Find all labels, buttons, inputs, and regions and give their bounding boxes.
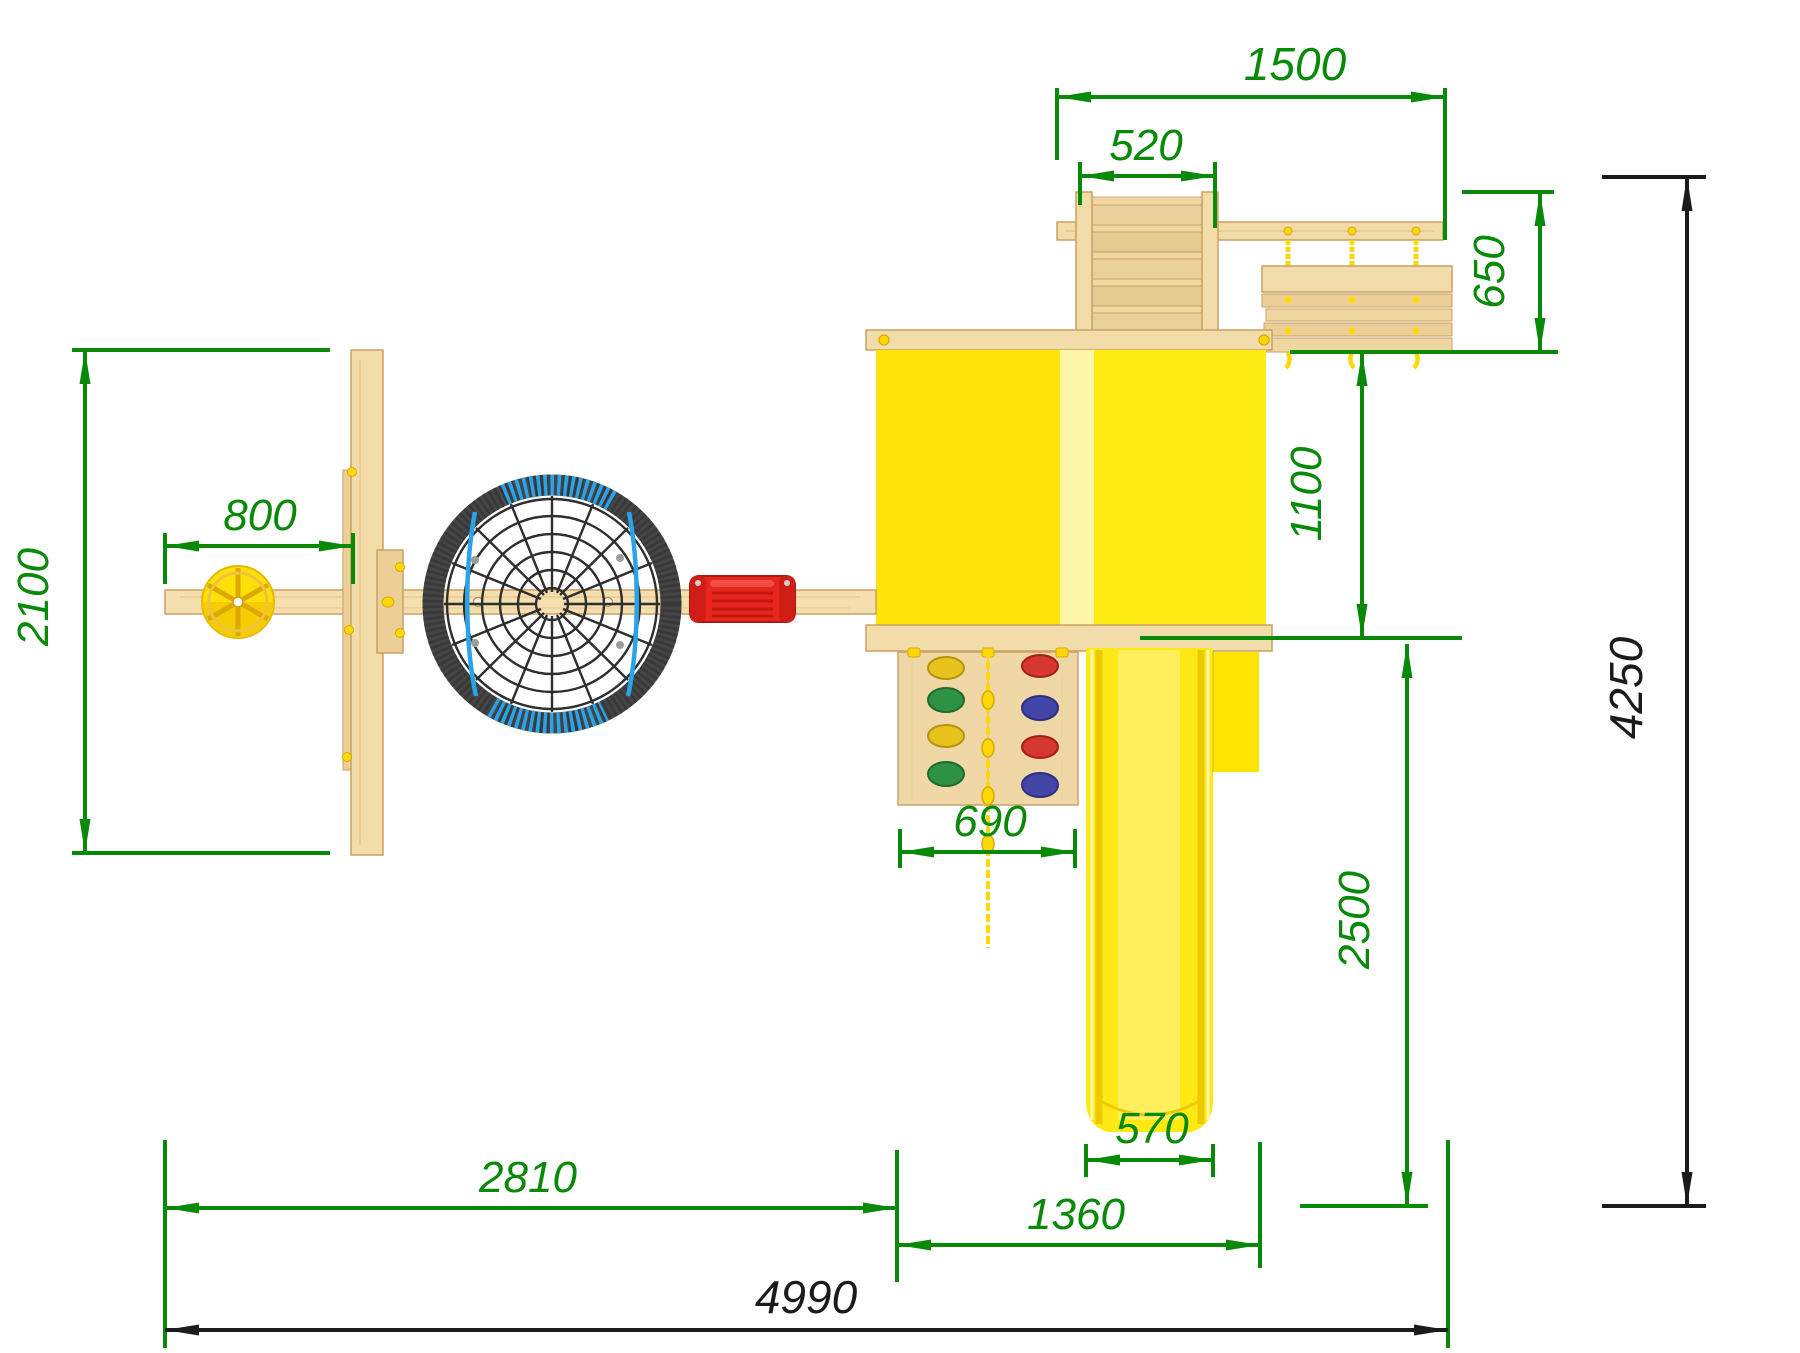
- dim-label: 1500: [1244, 38, 1347, 90]
- rope-knot: [982, 739, 994, 757]
- post-cap: [345, 626, 354, 635]
- rope-anchor-dot: [1284, 227, 1292, 235]
- rope-anchor-dot: [1348, 227, 1356, 235]
- tower-roof-left: [876, 350, 1060, 627]
- post-cap: [879, 335, 889, 345]
- bridge-rope-ends: [1286, 352, 1418, 368]
- rope-anchor-dot: [1412, 227, 1420, 235]
- a-frame-top-view: [343, 350, 405, 855]
- tower-top-view: [866, 330, 1272, 651]
- dim-climbing-wall-width: 690: [900, 797, 1075, 868]
- tower-roof-right: [1094, 350, 1266, 627]
- dim-total-width: 4990: [165, 1271, 1448, 1336]
- dim-label: 2810: [478, 1153, 577, 1202]
- dim-label: 4250: [1600, 636, 1652, 739]
- dim-label: 650: [1465, 235, 1514, 309]
- post-cap: [348, 468, 357, 477]
- slide-top-view: [1086, 648, 1259, 1132]
- dim-label: 520: [1109, 121, 1183, 170]
- post-cap: [1259, 335, 1269, 345]
- post-cap: [343, 753, 352, 762]
- dim-label: 570: [1115, 1104, 1189, 1153]
- steering-wheel: [202, 566, 274, 638]
- dim-label: 1360: [1027, 1190, 1125, 1239]
- dim-total-depth: 4250: [1600, 177, 1706, 1206]
- slide-support-post: [1213, 652, 1259, 772]
- rope-bridge-top-view: [1262, 240, 1452, 368]
- drawing-canvas: 1500 520 650 1100: [0, 0, 1800, 1353]
- playground-plan-drawing: 1500 520 650 1100: [0, 0, 1800, 1353]
- post-cap: [396, 563, 405, 572]
- tower-platform-top-edge: [866, 330, 1272, 350]
- post-cap: [396, 629, 405, 638]
- dim-slide-run-length: 2500: [1300, 644, 1428, 1206]
- swing-hook: [784, 580, 790, 586]
- bridge-ropes: [1288, 240, 1416, 268]
- dim-label: 4990: [755, 1271, 858, 1323]
- dim-label: 1100: [1282, 446, 1331, 541]
- dim-label: 690: [953, 797, 1027, 846]
- swing-hook: [695, 580, 701, 586]
- dim-label: 2500: [1330, 871, 1379, 970]
- tower-roof-stripe: [1060, 350, 1094, 627]
- rope-knot: [982, 691, 994, 709]
- flat-swing-seat-top-view: [690, 576, 795, 622]
- dim-beam-end-to-aframe: 800: [165, 491, 353, 584]
- wheel-hub: [233, 597, 243, 607]
- dim-label: 800: [223, 491, 297, 540]
- slide-bed: [1118, 650, 1180, 1120]
- dim-label: 2100: [9, 548, 58, 647]
